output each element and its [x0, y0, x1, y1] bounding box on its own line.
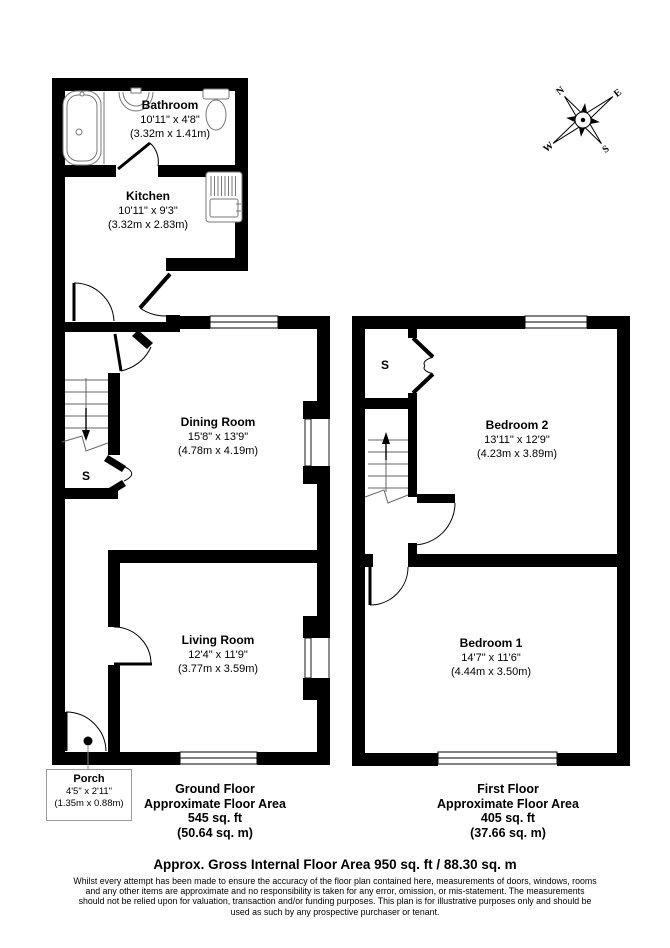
floor-area-ft: 545 sq. ft [130, 811, 300, 826]
floorplan-page: N E S W Bathroom 10'11" x 4'8" (3.32m x … [0, 0, 670, 948]
window-bedroom1 [438, 752, 557, 764]
room-dims-metric: (3.77m x 3.59m) [143, 662, 293, 676]
floor-title: Ground Floor [130, 782, 300, 797]
porch-marker-dot [84, 737, 93, 746]
room-dims-metric: (1.35m x 0.88m) [47, 798, 131, 810]
bedroom2-door [413, 503, 455, 545]
floor-subtitle: Approximate Floor Area [130, 797, 300, 812]
floor-subtitle: Approximate Floor Area [423, 797, 593, 812]
room-dims-metric: (4.44m x 3.50m) [416, 665, 566, 679]
window-dining [210, 316, 278, 328]
ground-floor-area-label: Ground Floor Approximate Floor Area 545 … [130, 782, 300, 840]
understairs-cupboard-door [124, 467, 132, 481]
room-name: Porch [47, 772, 131, 786]
gross-internal-area: Approx. Gross Internal Floor Area 950 sq… [0, 857, 670, 872]
room-label-kitchen: Kitchen 10'11" x 9'3" (3.32m x 2.83m) [73, 189, 223, 232]
floor-area-m: (50.64 sq. m) [130, 826, 300, 841]
compass-east-label: E [612, 87, 624, 100]
room-dims-imperial: 15'8" x 13'9" [143, 430, 293, 444]
first-floor-walls [352, 316, 630, 766]
window-living [180, 752, 257, 764]
room-label-bedroom-2: Bedroom 2 13'11" x 12'9" (4.23m x 3.89m) [442, 418, 592, 461]
compass-north-label: N [554, 84, 567, 98]
floor-area-m: (37.66 sq. m) [423, 826, 593, 841]
bedroom1-door [370, 567, 408, 605]
room-dims-metric: (3.32m x 2.83m) [73, 218, 223, 232]
room-dims-imperial: 12'4" x 11'9" [143, 648, 293, 662]
room-label-dining-room: Dining Room 15'8" x 13'9" (4.78m x 4.19m… [143, 415, 293, 458]
room-dims-imperial: 13'11" x 12'9" [442, 433, 592, 447]
floor-title: First Floor [423, 782, 593, 797]
room-dims-imperial: 10'11" x 4'8" [95, 113, 245, 127]
room-name: Kitchen [73, 189, 223, 204]
storage-label-ground: S [78, 469, 94, 483]
staircase-ground [62, 378, 108, 451]
stairs-down-arrow [82, 408, 90, 441]
windows [180, 316, 587, 764]
hall-door [74, 283, 114, 321]
room-dims-metric: (4.78m x 4.19m) [143, 444, 293, 458]
first-floor-area-label: First Floor Approximate Floor Area 405 s… [423, 782, 593, 840]
room-name: Dining Room [143, 415, 293, 430]
room-name: Living Room [143, 633, 293, 648]
room-name: Bedroom 2 [442, 418, 592, 433]
stairs-up-arrow [382, 432, 390, 460]
room-dims-imperial: 14'7" x 11'6" [416, 651, 566, 665]
room-dims-metric: (4.23m x 3.89m) [442, 447, 592, 461]
porch-label-box: Porch 4'5" x 2'11" (1.35m x 0.88m) [46, 769, 132, 821]
room-dims-imperial: 4'5" x 2'11" [47, 786, 131, 798]
chimney-breast-dining [305, 419, 329, 466]
room-label-living-room: Living Room 12'4" x 11'9" (3.77m x 3.59m… [143, 633, 293, 676]
landing-cupboard-doors [413, 338, 433, 393]
chimney-breast-living [305, 638, 329, 678]
room-dims-imperial: 10'11" x 9'3" [73, 204, 223, 218]
storage-label-first: S [377, 358, 393, 372]
room-name: Bathroom [95, 98, 245, 113]
kitchen-door [140, 274, 170, 316]
room-name: Bedroom 1 [416, 636, 566, 651]
disclaimer-text: Whilst every attempt has been made to en… [73, 876, 597, 917]
room-label-bathroom: Bathroom 10'11" x 4'8" (3.32m x 1.41m) [95, 98, 245, 141]
bathroom-door [118, 143, 158, 169]
room-label-bedroom-1: Bedroom 1 14'7" x 11'6" (4.44m x 3.50m) [416, 636, 566, 679]
compass-south-label: S [601, 143, 613, 155]
compass-rose: N E S W [519, 58, 648, 184]
window-bedroom2 [525, 316, 587, 328]
floor-area-ft: 405 sq. ft [423, 811, 593, 826]
room-dims-metric: (3.32m x 1.41m) [95, 127, 245, 141]
